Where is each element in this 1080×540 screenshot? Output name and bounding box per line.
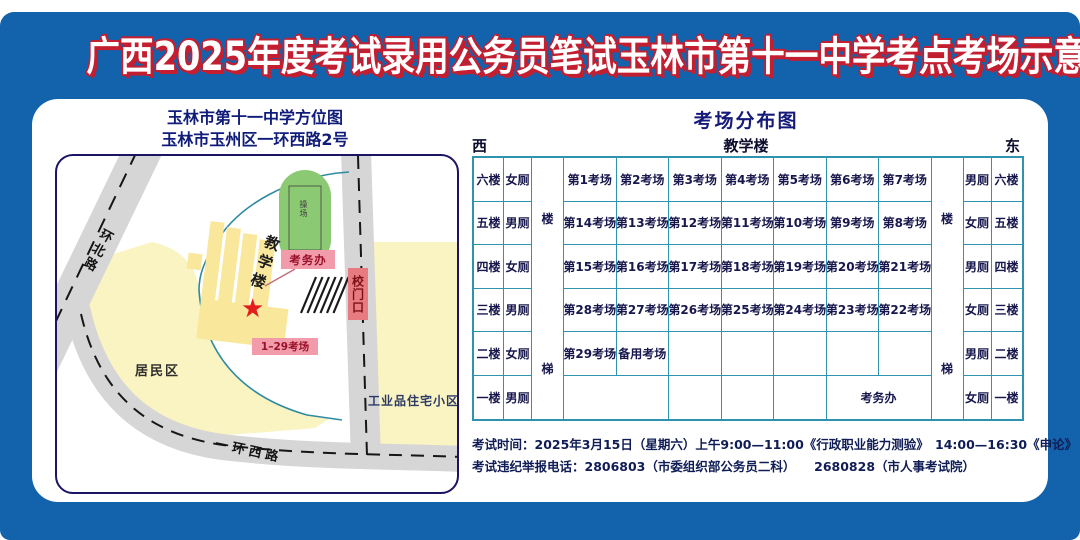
- cell-floor-right: 六楼: [992, 158, 1022, 202]
- cell-room: 第11考场: [722, 202, 775, 246]
- cell-room: 第28考场: [564, 289, 617, 333]
- cell-toilet-right: 男厕: [964, 332, 992, 376]
- cell-floor-left: 一楼: [474, 376, 504, 420]
- cell-empty: [722, 332, 775, 376]
- distribution-header: 西 教学楼 东: [472, 135, 1020, 156]
- distribution-title: 考场分布图: [472, 106, 1020, 133]
- cell-empty: [774, 376, 827, 420]
- cell-room: 第7考场: [879, 158, 932, 202]
- cell-floor-right: 三楼: [992, 289, 1022, 333]
- cell-room: 第23考场: [827, 289, 880, 333]
- cell-room: 第17考场: [669, 245, 722, 289]
- cell-empty: [879, 332, 932, 376]
- stairs-top-char: 楼: [541, 210, 553, 227]
- gate-stripes: [301, 277, 349, 313]
- cell-empty: [669, 332, 722, 376]
- cell-floor-left: 二楼: [474, 332, 504, 376]
- stairs-top-char: 楼: [941, 210, 953, 227]
- report-phone-info: 考试违纪举报电话：2806803（市委组织部公务员二科） 2680828（市人事…: [472, 456, 1032, 475]
- cell-room: 第27考场: [617, 289, 670, 333]
- school-gate-label: 校门口: [348, 268, 368, 320]
- cell-floor-right: 四楼: [992, 245, 1022, 289]
- cell-room: 第22考场: [879, 289, 932, 333]
- cell-empty: [722, 376, 775, 420]
- cell-room: 第9考场: [827, 202, 880, 246]
- cell-room: 第16考场: [617, 245, 670, 289]
- cell-empty: [669, 376, 722, 420]
- cell-room: 第25考场: [722, 289, 775, 333]
- cell-room: 第5考场: [774, 158, 827, 202]
- cell-toilet-left: 男厕: [504, 376, 532, 420]
- playground-label: 操场: [298, 200, 309, 218]
- cell-toilet-left: 女厕: [504, 158, 532, 202]
- cell-room: 第13考场: [617, 202, 670, 246]
- cell-floor-right: 一楼: [992, 376, 1022, 420]
- cell-toilet-left: 男厕: [504, 202, 532, 246]
- cell-floor-left: 六楼: [474, 158, 504, 202]
- exam-time-info: 考试时间：2025年3月15日（星期六）上午9:00—11:00《行政职业能力测…: [472, 434, 1032, 453]
- cell-empty: [827, 332, 880, 376]
- cell-floor-right: 二楼: [992, 332, 1022, 376]
- cell-room: 第14考场: [564, 202, 617, 246]
- cell-room: 考务办: [827, 376, 932, 420]
- cell-room: 第20考场: [827, 245, 880, 289]
- cell-room: 第19考场: [774, 245, 827, 289]
- room-distribution-table: 六楼女厕楼梯楼梯第1考场第2考场第3考场第4考场第5考场第6考场第7考场男厕六楼…: [472, 156, 1024, 421]
- stairs-bottom-char: 梯: [941, 360, 953, 377]
- stairs-bottom-char: 梯: [541, 360, 553, 377]
- cell-floor-left: 三楼: [474, 289, 504, 333]
- cell-room: 第1考场: [564, 158, 617, 202]
- cell-room: 第2考场: [617, 158, 670, 202]
- cell-room: 第12考场: [669, 202, 722, 246]
- cell-room: 备用考场: [617, 332, 670, 376]
- map-address: 玉林市玉州区一环西路2号: [75, 126, 435, 150]
- location-map: 环北路 操场 教学楼 考务办 校门口 ★ 1–29考场 居民区 工业品住宅小区 …: [55, 154, 459, 494]
- cell-room: 第24考场: [774, 289, 827, 333]
- map-title: 玉林市第十一中学方位图: [75, 104, 435, 128]
- exam-office-label: 考务办: [281, 250, 335, 269]
- cell-toilet-right: 女厕: [964, 202, 992, 246]
- cell-room: 第8考场: [879, 202, 932, 246]
- cell-room: 第29考场: [564, 332, 617, 376]
- cell-floor-left: 五楼: [474, 202, 504, 246]
- cell-empty: [564, 376, 669, 420]
- cell-toilet-right: 女厕: [964, 289, 992, 333]
- poster-title: 广西2025年度考试录用公务员笔试玉林市第十一中学考点考场示意图: [86, 24, 993, 82]
- cell-toilet-right: 女厕: [964, 376, 992, 420]
- cell-room: 第4考场: [722, 158, 775, 202]
- cell-room: 第6考场: [827, 158, 880, 202]
- cell-toilet-left: 女厕: [504, 332, 532, 376]
- residential-area-label: 居民区: [135, 360, 180, 379]
- cell-room: 第18考场: [722, 245, 775, 289]
- poster-page: 广西2025年度考试录用公务员笔试玉林市第十一中学考点考场示意图 玉林市第十一中…: [0, 0, 1080, 540]
- cell-floor-left: 四楼: [474, 245, 504, 289]
- cell-toilet-left: 男厕: [504, 289, 532, 333]
- cell-room: 第10考场: [774, 202, 827, 246]
- stairs-column: 楼梯: [932, 158, 964, 419]
- cell-room: 第15考场: [564, 245, 617, 289]
- cell-toilet-right: 男厕: [964, 245, 992, 289]
- cell-room: 第26考场: [669, 289, 722, 333]
- rooms-range-label: 1–29考场: [252, 338, 318, 355]
- cell-room: 第3考场: [669, 158, 722, 202]
- east-label: 东: [1005, 135, 1020, 156]
- cell-floor-right: 五楼: [992, 202, 1022, 246]
- building-label: 教学楼: [723, 135, 768, 156]
- industrial-community-label: 工业品住宅小区: [368, 392, 459, 409]
- cell-empty: [774, 332, 827, 376]
- cell-toilet-right: 男厕: [964, 158, 992, 202]
- industrial-area-shape: [369, 242, 457, 448]
- west-label: 西: [472, 135, 487, 156]
- cell-room: 第21考场: [879, 245, 932, 289]
- exam-site-star-icon: ★: [241, 296, 264, 322]
- cell-toilet-left: 女厕: [504, 245, 532, 289]
- stairs-column: 楼梯: [532, 158, 564, 419]
